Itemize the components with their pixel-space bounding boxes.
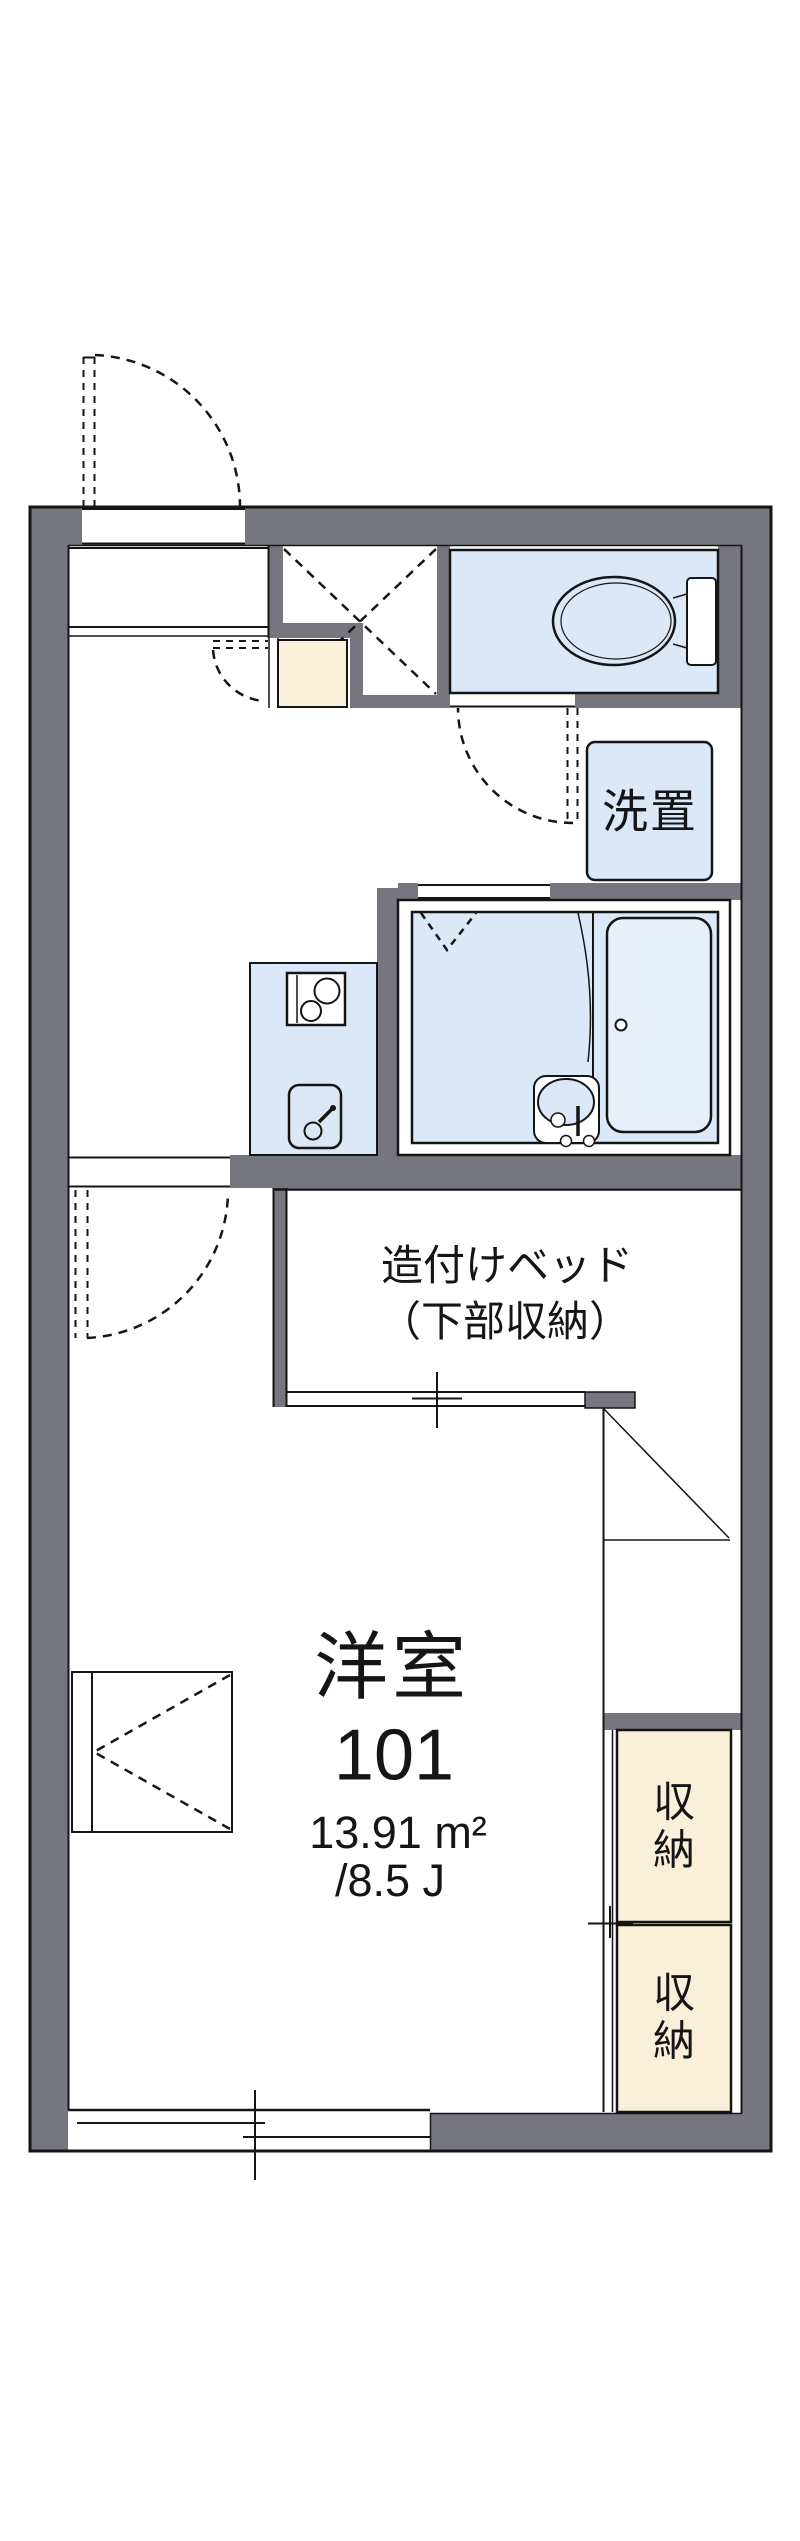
bathroom [398, 900, 730, 1155]
bed-bottom-stub [585, 1392, 635, 1408]
column-diagonal [604, 1409, 729, 1538]
toilet-bottom-wall [575, 693, 742, 708]
hallway-door-arc [213, 641, 268, 701]
bathtub-icon [607, 918, 711, 1132]
bath-door-opening [418, 884, 550, 899]
bed-label-line2: （下部収納） [379, 1298, 631, 1346]
wall-window-symbol [72, 1672, 232, 1832]
bath-wall-left [398, 883, 418, 900]
storage2-label: 収納 [650, 1970, 698, 2067]
kitchen-counter [250, 963, 377, 1155]
main-room-area: 13.91 m² [309, 1807, 487, 1859]
bed-label-line1: 造付けベッド [381, 1242, 633, 1290]
closet-right-wall [437, 545, 450, 708]
storage1-label: 収納 [650, 1779, 698, 1876]
right-wall [742, 545, 771, 2150]
main-room-tatami: /8.5 J [335, 1855, 445, 1907]
toilet-door-opening [450, 695, 575, 708]
kitchen-bath-wall [377, 888, 398, 1155]
main-room-door-opening [68, 1157, 230, 1187]
bottom-wall [430, 2113, 771, 2150]
bed-left-wall [273, 1188, 287, 1407]
entrance-area [68, 545, 436, 708]
toilet-right-wall [718, 545, 744, 708]
storage-top-wall [603, 1713, 742, 1730]
entrance-door-arc [83, 355, 240, 507]
toilet-tank [687, 578, 716, 665]
main-room-name: 洋室 [314, 1624, 470, 1709]
shoe-cabinet [278, 640, 347, 707]
toilet-room [450, 550, 718, 693]
closet-mid-wall [350, 638, 363, 695]
left-wall [30, 545, 68, 2150]
bath-sink-icon [534, 1076, 599, 1147]
toilet-door-arc [458, 708, 578, 823]
closet-left-wall [268, 545, 283, 638]
entrance-door-opening [82, 509, 245, 544]
stove-icon [287, 973, 345, 1025]
main-room-number: 101 [334, 1715, 454, 1798]
sliding-window [77, 2090, 430, 2180]
washer-label: 洗置 [602, 786, 698, 839]
mid-wall [230, 1155, 742, 1188]
bath-wall-right [550, 883, 742, 900]
main-room-door-arc [76, 1190, 229, 1338]
closet-bottom-wall [350, 695, 437, 708]
floor-plan: 洗置 造付けベッド （下部収納） 洋室 101 13.91 m² /8.5 J … [0, 0, 800, 2541]
